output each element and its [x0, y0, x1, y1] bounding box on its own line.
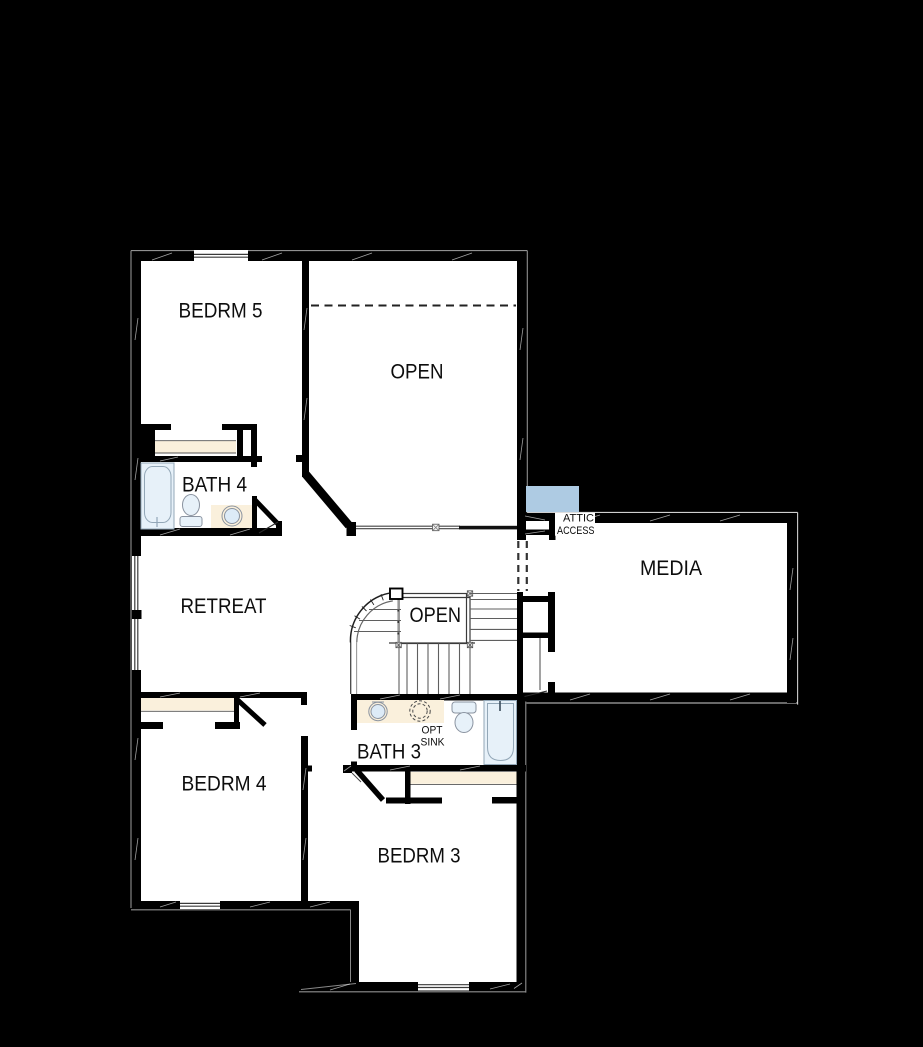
svg-text:ACCESS: ACCESS [557, 525, 595, 537]
svg-text:BATH 4: BATH 4 [182, 473, 247, 497]
svg-text:BEDRM 5: BEDRM 5 [179, 299, 263, 323]
svg-text:OPEN: OPEN [410, 604, 462, 627]
svg-text:OPEN: OPEN [391, 359, 444, 383]
svg-text:BATH 3: BATH 3 [357, 740, 421, 764]
svg-text:ATTIC: ATTIC [563, 513, 594, 525]
svg-text:BEDRM 3: BEDRM 3 [378, 843, 461, 867]
svg-text:OPT: OPT [422, 725, 443, 737]
svg-text:SINK: SINK [421, 737, 446, 749]
svg-text:RETREAT: RETREAT [181, 594, 267, 618]
svg-text:BEDRM 4: BEDRM 4 [182, 772, 267, 796]
svg-text:MEDIA: MEDIA [640, 556, 703, 580]
